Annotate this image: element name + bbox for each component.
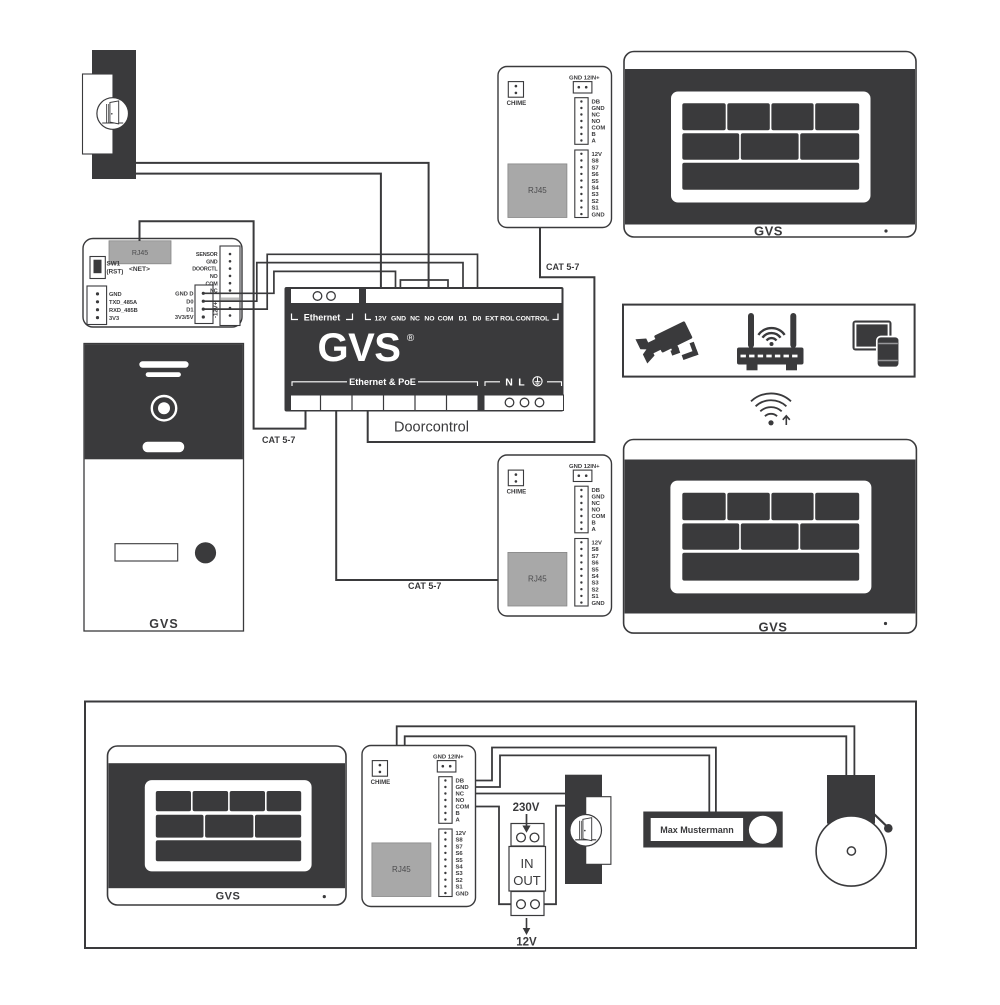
svg-text:GND D: GND D xyxy=(175,292,193,298)
svg-text:CHIME: CHIME xyxy=(371,779,391,786)
svg-text:S7: S7 xyxy=(592,554,600,560)
svg-text:S2: S2 xyxy=(592,587,600,593)
svg-text:S4: S4 xyxy=(456,865,464,871)
svg-text:COM: COM xyxy=(592,126,606,132)
svg-text:NC: NC xyxy=(456,792,465,798)
svg-text:S8: S8 xyxy=(592,159,600,165)
svg-text:EXT: EXT xyxy=(485,315,499,322)
svg-text:GND 12IN+: GND 12IN+ xyxy=(569,464,600,470)
svg-text:S4: S4 xyxy=(592,186,600,192)
svg-text:GVS: GVS xyxy=(759,619,788,634)
svg-text:GVS: GVS xyxy=(216,891,241,903)
svg-text:S7: S7 xyxy=(456,844,464,850)
svg-text:Ethernet & PoE: Ethernet & PoE xyxy=(349,377,416,387)
svg-text:GND: GND xyxy=(206,259,218,265)
svg-text:S3: S3 xyxy=(592,192,600,198)
svg-text:12V: 12V xyxy=(592,152,603,158)
svg-text:CAT 5-7: CAT 5-7 xyxy=(262,435,295,445)
svg-text:GND 12IN+: GND 12IN+ xyxy=(569,76,600,82)
svg-text:Max Mustermann: Max Mustermann xyxy=(660,825,734,835)
svg-text:L: L xyxy=(518,377,525,389)
svg-text:COM: COM xyxy=(438,315,454,322)
svg-text:IN: IN xyxy=(521,856,534,871)
svg-text:GND: GND xyxy=(391,315,406,322)
svg-text:CHIME: CHIME xyxy=(507,100,527,107)
svg-text:COM: COM xyxy=(456,805,470,811)
svg-text:D0: D0 xyxy=(186,299,193,305)
svg-text:S6: S6 xyxy=(456,851,464,857)
svg-text:S5: S5 xyxy=(456,858,464,864)
svg-text:GVS: GVS xyxy=(754,223,783,238)
svg-text:S6: S6 xyxy=(592,561,600,567)
svg-text:GND: GND xyxy=(456,891,469,897)
svg-text:D1: D1 xyxy=(186,307,193,313)
svg-text:S3: S3 xyxy=(592,581,600,587)
svg-text:ROL: ROL xyxy=(500,315,514,322)
svg-text:RXD_485B: RXD_485B xyxy=(109,308,138,314)
svg-text:COM: COM xyxy=(206,281,219,287)
svg-text:GND: GND xyxy=(592,212,605,218)
svg-text:D0: D0 xyxy=(473,315,482,322)
svg-text:S5: S5 xyxy=(592,567,600,573)
svg-text:COM: COM xyxy=(592,514,606,520)
svg-text:GND 12IN+: GND 12IN+ xyxy=(433,755,464,761)
svg-text:NO: NO xyxy=(210,274,218,280)
svg-text:S4: S4 xyxy=(592,574,600,580)
svg-text:SW1: SW1 xyxy=(107,261,121,268)
svg-text:B: B xyxy=(456,811,460,817)
svg-text:NO: NO xyxy=(592,119,601,125)
svg-text:NO: NO xyxy=(456,798,465,804)
svg-text:NO: NO xyxy=(424,315,434,322)
svg-text:B: B xyxy=(592,132,596,138)
svg-text:12V: 12V xyxy=(592,541,603,547)
svg-text:CAT 5-7: CAT 5-7 xyxy=(408,581,441,591)
svg-text:3V3: 3V3 xyxy=(109,316,119,322)
svg-text:(RST): (RST) xyxy=(107,269,124,276)
svg-text:RJ45: RJ45 xyxy=(528,575,547,584)
svg-text:3V3/5V: 3V3/5V xyxy=(175,315,194,321)
svg-text:OUT: OUT xyxy=(513,873,541,888)
svg-text:RJ45: RJ45 xyxy=(132,250,148,257)
svg-text:DB: DB xyxy=(456,779,465,785)
svg-text:CHIME: CHIME xyxy=(507,489,527,496)
svg-text:12V: 12V xyxy=(456,831,467,837)
svg-text:CAT 5-7: CAT 5-7 xyxy=(546,262,579,272)
svg-text:TXD_485A: TXD_485A xyxy=(109,300,137,306)
svg-text:B: B xyxy=(592,521,596,527)
svg-text:D1: D1 xyxy=(459,315,468,322)
svg-text:S1: S1 xyxy=(456,885,464,891)
svg-text:RJ45: RJ45 xyxy=(528,186,547,195)
svg-text:Doorcontrol: Doorcontrol xyxy=(394,420,469,436)
svg-text:N: N xyxy=(505,377,513,389)
svg-text:DB: DB xyxy=(592,488,601,494)
svg-text:RJ45: RJ45 xyxy=(392,865,411,874)
svg-text:DB: DB xyxy=(592,100,601,106)
svg-text:S7: S7 xyxy=(592,165,600,171)
svg-text:A: A xyxy=(592,139,597,145)
svg-text:GND: GND xyxy=(456,785,469,791)
svg-text:GND: GND xyxy=(592,601,605,607)
svg-text:12V: 12V xyxy=(516,937,537,949)
svg-text:CONTROL: CONTROL xyxy=(516,315,550,322)
svg-text:®: ® xyxy=(407,333,415,344)
svg-text:GVS: GVS xyxy=(318,326,401,370)
svg-text:S8: S8 xyxy=(456,838,464,844)
svg-text:GND: GND xyxy=(592,106,605,112)
svg-text:S1: S1 xyxy=(592,594,600,600)
svg-text:GND: GND xyxy=(109,292,122,298)
svg-text:SENSOR: SENSOR xyxy=(196,252,218,258)
svg-text:GND: GND xyxy=(592,495,605,501)
svg-text:230V: 230V xyxy=(513,802,540,814)
svg-text:S6: S6 xyxy=(592,172,600,178)
svg-text:NC: NC xyxy=(592,501,601,507)
svg-text:12V: 12V xyxy=(374,315,387,322)
svg-text:NO: NO xyxy=(592,508,601,514)
svg-text:S3: S3 xyxy=(456,871,464,877)
svg-text:S2: S2 xyxy=(456,878,464,884)
svg-text:S1: S1 xyxy=(592,206,600,212)
svg-text:A: A xyxy=(456,818,461,824)
svg-text:DOORCTL: DOORCTL xyxy=(192,267,218,273)
svg-text:S8: S8 xyxy=(592,547,600,553)
svg-text:GVS: GVS xyxy=(149,617,178,631)
svg-text:Ethernet: Ethernet xyxy=(304,313,341,323)
svg-text:NC: NC xyxy=(592,113,601,119)
svg-text:S5: S5 xyxy=(592,179,600,185)
svg-text:NC: NC xyxy=(410,315,420,322)
svg-text:A: A xyxy=(592,527,597,533)
svg-text:<NET>: <NET> xyxy=(129,266,150,273)
svg-text:S2: S2 xyxy=(592,199,600,205)
